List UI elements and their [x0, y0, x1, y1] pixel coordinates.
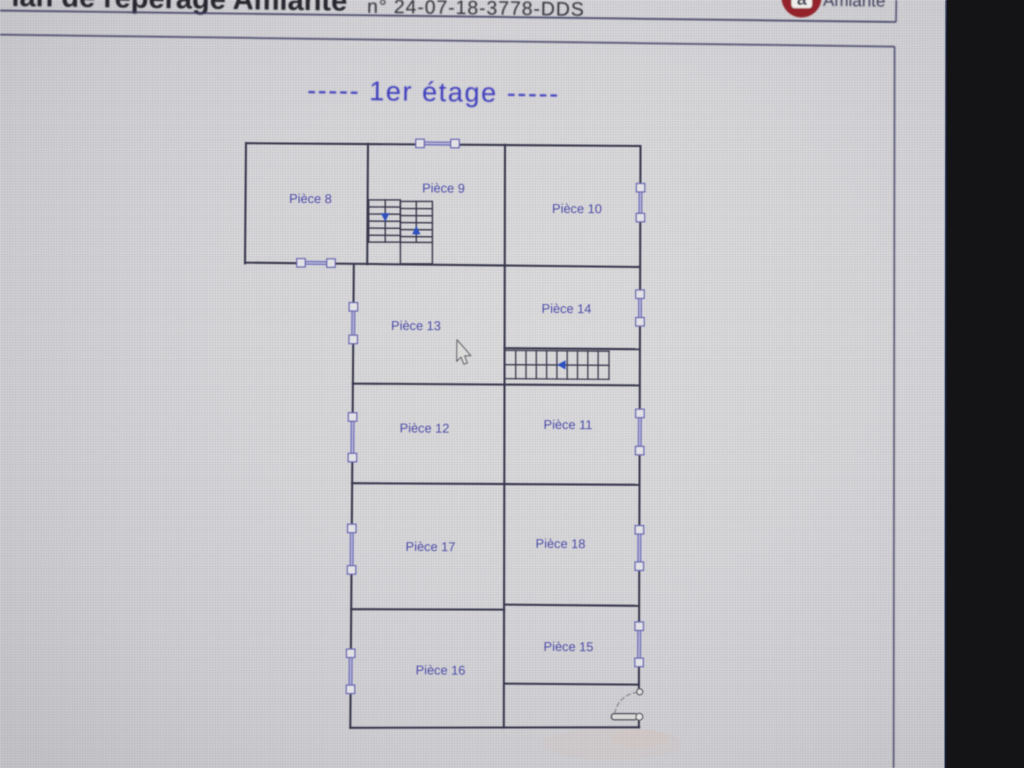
- svg-text:Pièce 14: Pièce 14: [542, 301, 592, 316]
- svg-text:Pièce 12: Pièce 12: [400, 420, 450, 435]
- svg-text:Pièce 18: Pièce 18: [536, 536, 586, 551]
- svg-text:Pièce 9: Pièce 9: [422, 180, 465, 195]
- svg-text:Pièce 11: Pièce 11: [544, 417, 593, 432]
- svg-text:Pièce 16: Pièce 16: [416, 662, 466, 677]
- svg-text:a: a: [797, 0, 808, 9]
- svg-text:Pièce 17: Pièce 17: [406, 539, 456, 554]
- svg-text:Pièce 15: Pièce 15: [544, 639, 594, 654]
- svg-text:----- 1er étage -----: ----- 1er étage -----: [307, 75, 560, 109]
- svg-text:Pièce 13: Pièce 13: [391, 318, 441, 333]
- svg-text:Pièce 8: Pièce 8: [289, 191, 332, 206]
- svg-text:Amiante: Amiante: [823, 0, 886, 11]
- svg-text:Pièce 10: Pièce 10: [552, 201, 602, 216]
